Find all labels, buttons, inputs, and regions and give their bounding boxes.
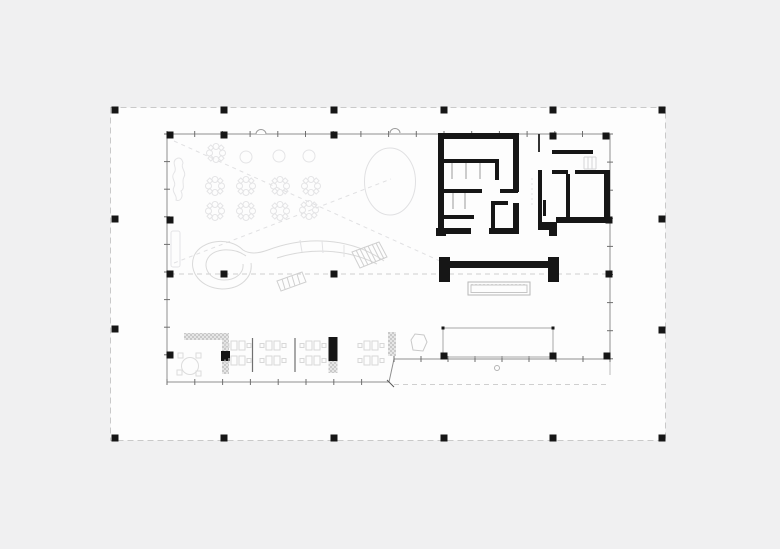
- floor-plan-drawing: [0, 0, 780, 549]
- shelf-wall-horizontal: [184, 333, 229, 340]
- entry-notch: [390, 129, 400, 134]
- shaft: [388, 332, 396, 356]
- partition-wall-black: [329, 337, 338, 361]
- floor-plan-canvas: [0, 0, 780, 549]
- entry-notch: [256, 130, 266, 135]
